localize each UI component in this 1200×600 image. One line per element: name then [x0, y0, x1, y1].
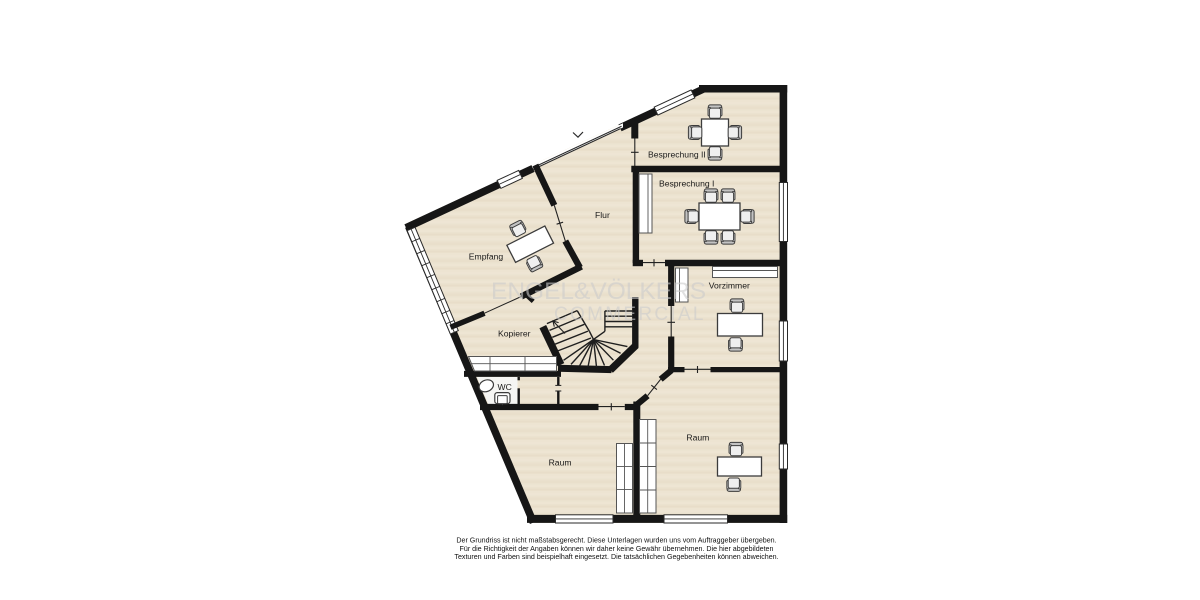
- svg-text:Texturen und Farben sind beisp: Texturen und Farben sind beispielhaft ei…: [454, 553, 778, 561]
- svg-text:Kopierer: Kopierer: [498, 329, 531, 339]
- svg-text:COMMERCIAL: COMMERCIAL: [554, 304, 706, 325]
- svg-text:Raum: Raum: [549, 458, 572, 468]
- svg-text:Besprechung I: Besprechung I: [659, 179, 714, 189]
- svg-text:Empfang: Empfang: [469, 252, 504, 262]
- svg-text:Für die Richtigkeit der Angabe: Für die Richtigkeit der Angaben können w…: [460, 545, 774, 553]
- svg-text:Der Grundriss ist nicht maßsta: Der Grundriss ist nicht maßstabsgerecht.…: [456, 537, 776, 545]
- svg-text:Raum: Raum: [686, 433, 709, 443]
- svg-text:ENGEL&VÖLKERS: ENGEL&VÖLKERS: [491, 278, 706, 305]
- svg-text:Flur: Flur: [595, 210, 610, 220]
- svg-text:WC: WC: [498, 382, 512, 392]
- svg-text:Besprechung II: Besprechung II: [648, 150, 706, 160]
- svg-text:Vorzimmer: Vorzimmer: [709, 281, 750, 291]
